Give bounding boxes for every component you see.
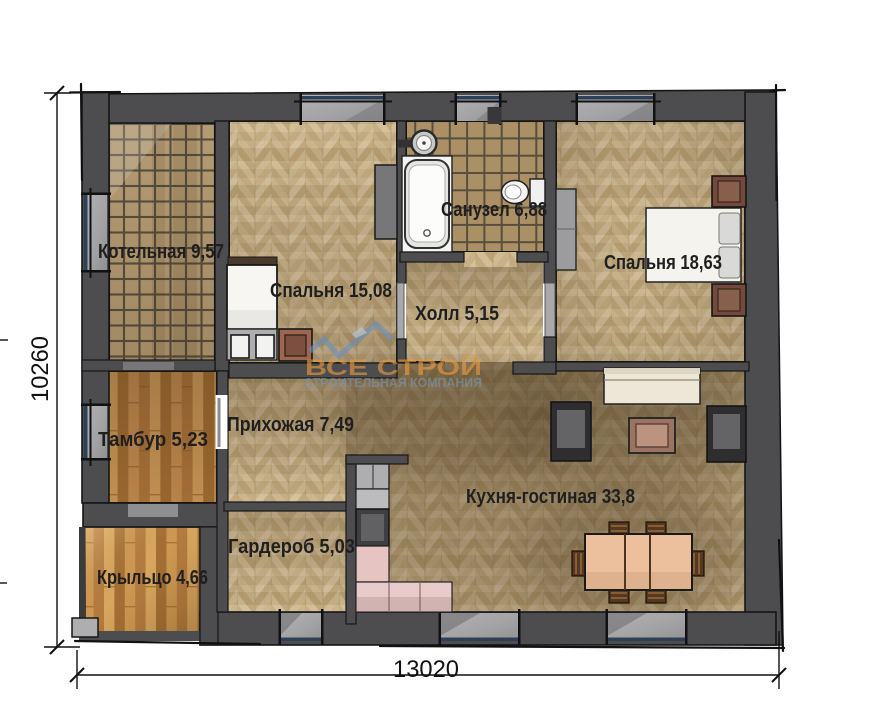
svg-text:Санузел 6,88: Санузел 6,88 — [441, 199, 547, 221]
svg-text:Тамбур 5,23: Тамбур 5,23 — [98, 429, 208, 451]
svg-text:10260: 10260 — [27, 336, 54, 402]
svg-text:Кухня-гостиная 33,8: Кухня-гостиная 33,8 — [466, 486, 635, 508]
svg-text:Гардероб 5,03: Гардероб 5,03 — [228, 536, 355, 558]
svg-text:Спальня 15,08: Спальня 15,08 — [270, 280, 392, 302]
svg-text:13020: 13020 — [393, 656, 459, 683]
svg-text:СТРОИТЕЛЬНАЯ КОМПАНИЯ: СТРОИТЕЛЬНАЯ КОМПАНИЯ — [304, 376, 482, 390]
svg-text:Котельная 9,57: Котельная 9,57 — [98, 241, 224, 263]
svg-text:Спальня 18,63: Спальня 18,63 — [604, 252, 722, 274]
svg-text:Прихожая 7,49: Прихожая 7,49 — [227, 414, 354, 436]
svg-text:Холл 5,15: Холл 5,15 — [415, 303, 499, 325]
svg-text:Крыльцо 4,66: Крыльцо 4,66 — [97, 567, 208, 589]
